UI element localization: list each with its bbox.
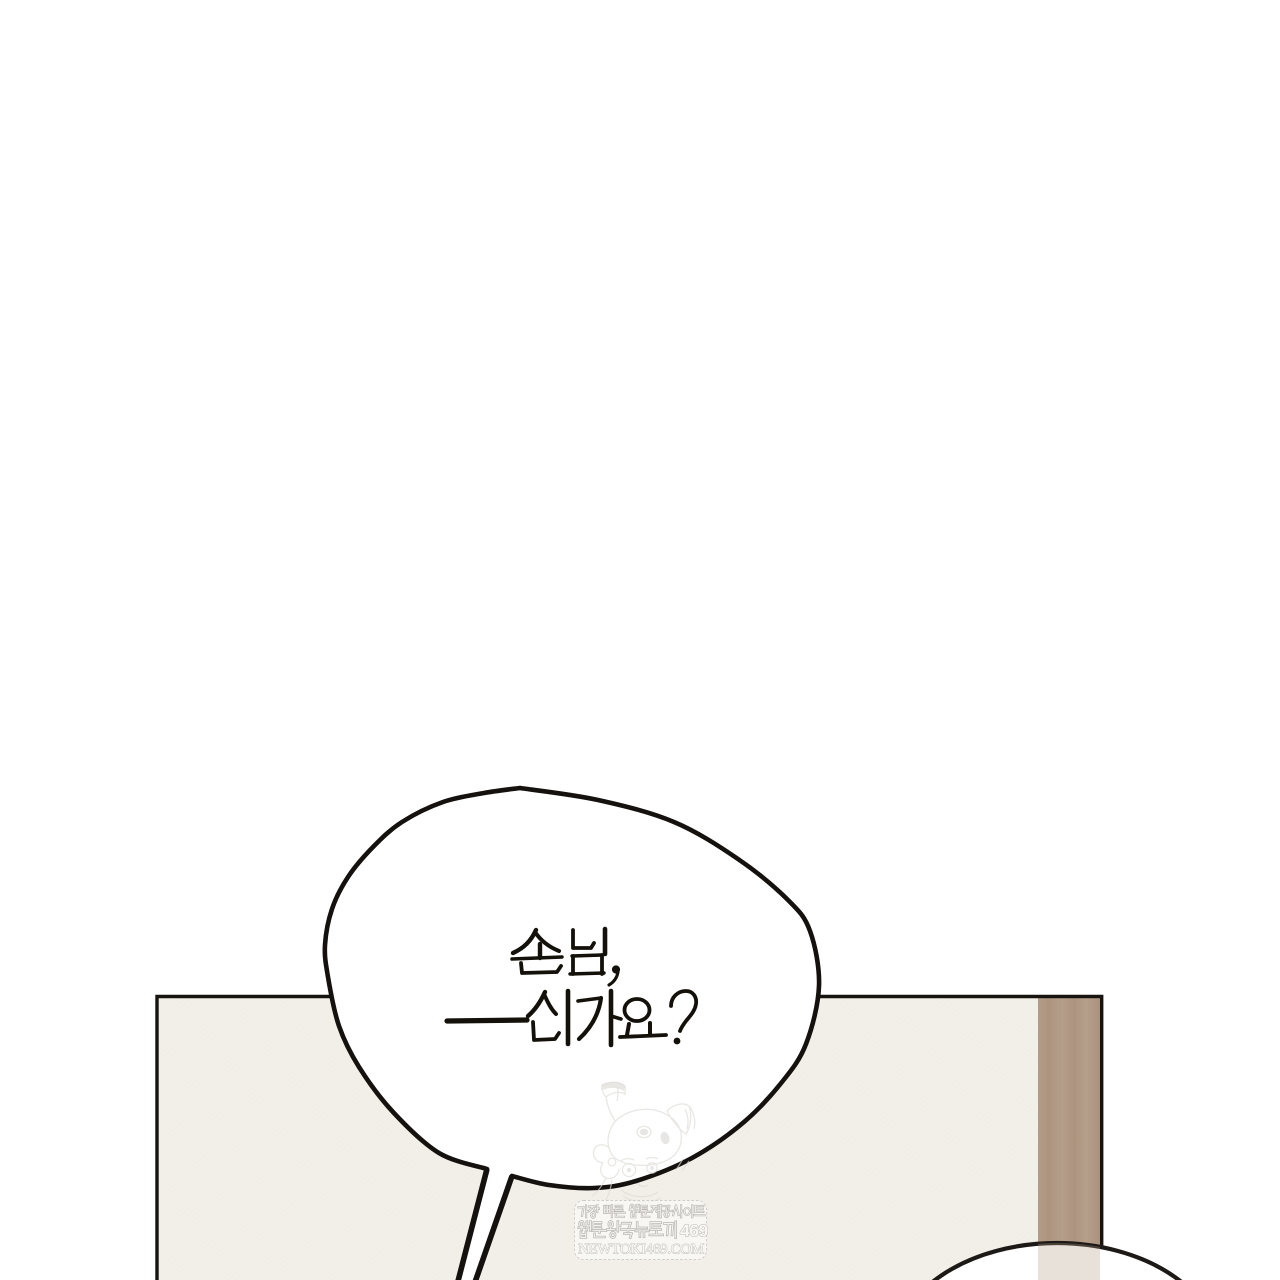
svg-text:NEWTOKI469.COM: NEWTOKI469.COM [578, 1242, 704, 1258]
svg-text:469: 469 [680, 1221, 708, 1241]
